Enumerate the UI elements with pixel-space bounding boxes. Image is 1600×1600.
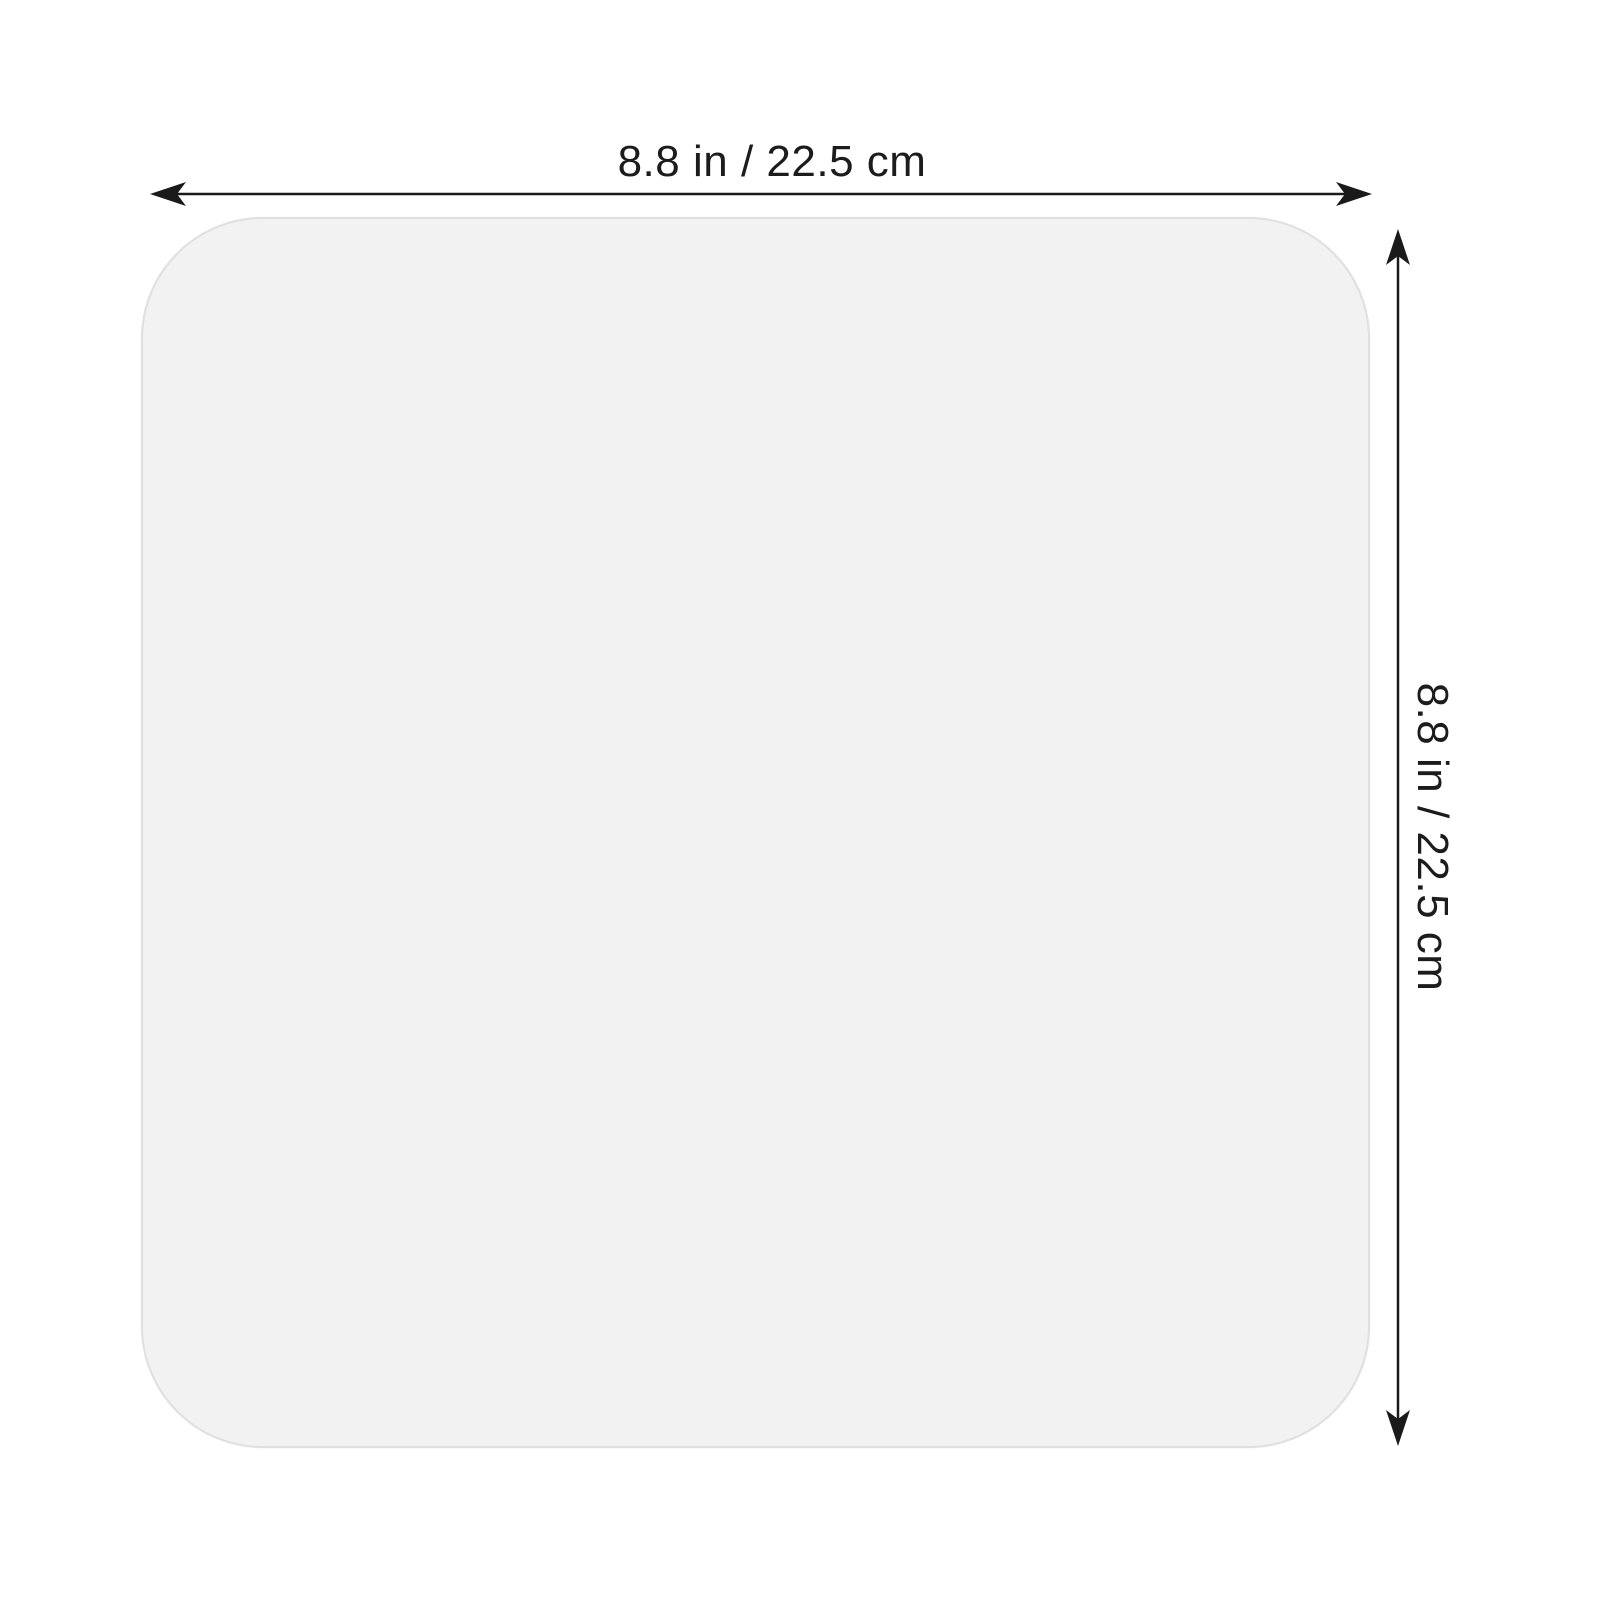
product-square-mat <box>141 217 1370 1448</box>
arrowhead-right-icon <box>1336 182 1372 206</box>
height-dimension-label: 8.8 in / 22.5 cm <box>1407 683 1457 992</box>
arrowhead-left-icon <box>150 182 186 206</box>
product-dimension-diagram: 8.8 in / 22.5 cm 8.8 in / 22.5 cm <box>0 0 1600 1600</box>
width-dimension-label: 8.8 in / 22.5 cm <box>618 137 927 187</box>
arrowhead-down-icon <box>1386 1410 1410 1446</box>
arrowhead-up-icon <box>1386 229 1410 265</box>
